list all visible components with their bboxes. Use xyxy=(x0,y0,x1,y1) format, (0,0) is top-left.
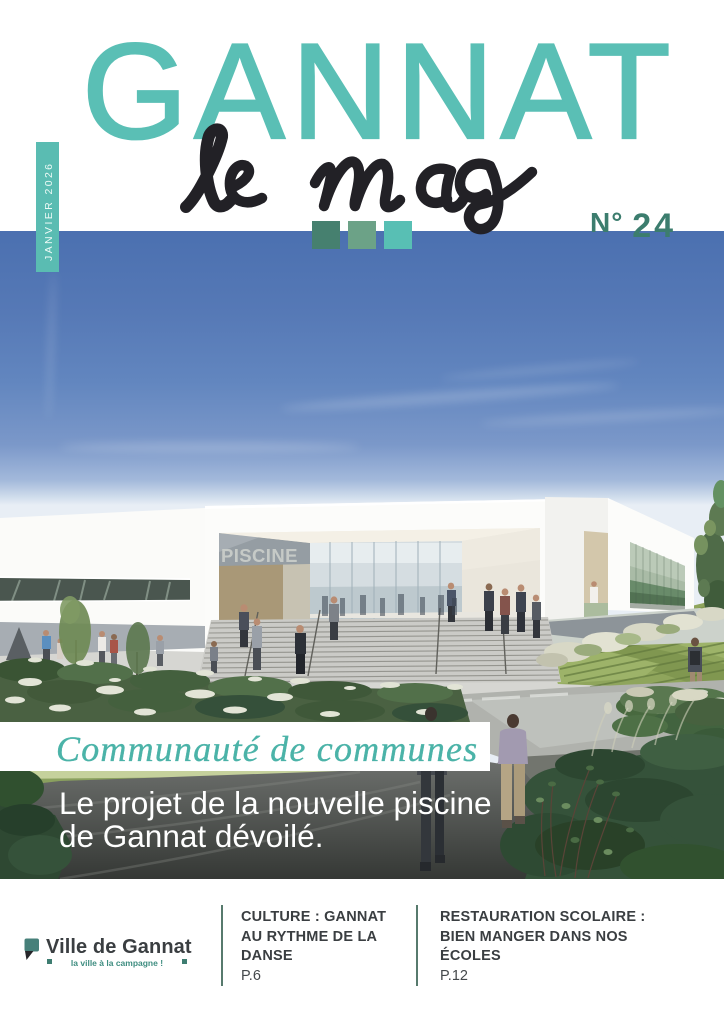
svg-text:Communauté de communes: Communauté de communes xyxy=(56,729,478,769)
svg-text:JANVIER 2026: JANVIER 2026 xyxy=(43,162,55,261)
svg-text:PISCINE: PISCINE xyxy=(221,545,298,566)
